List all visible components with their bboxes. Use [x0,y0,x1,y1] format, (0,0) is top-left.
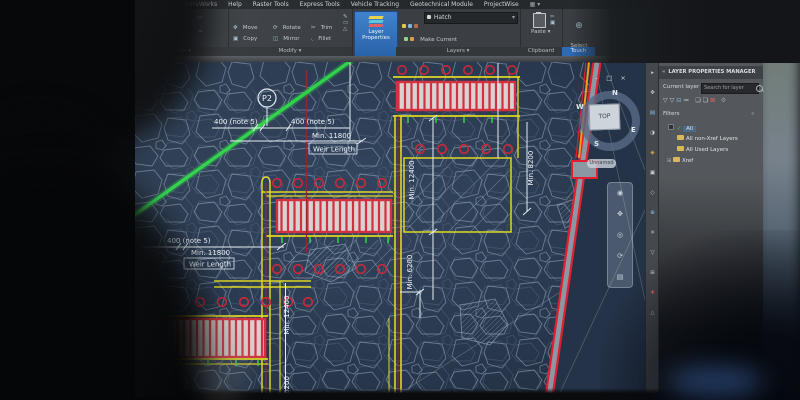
layer-properties-icon [369,16,383,27]
new-layer-icon[interactable]: ❏ [695,97,700,104]
drawing-window-controls: –□× [595,74,634,82]
menu-item-projectwise[interactable]: ProjectWise [484,1,519,8]
clipboard-extra-icons[interactable]: ✂▣ [550,14,555,26]
expand-icon[interactable]: ⊞ [667,158,671,164]
folder-icon [673,157,680,162]
tree-item-xref[interactable]: ⊞ Xref [667,157,693,164]
menu-item-geotechnical-module[interactable]: Geotechnical Module [410,1,473,8]
filter-group-icon[interactable]: ▽ [670,97,675,104]
layer-search-input[interactable]: Search for layer [701,83,759,94]
search-icon [756,85,763,92]
photo-of-cad-workstation: { "menu_bar": { "items": ["InfraWorks", … [0,0,800,400]
clipboard-panel-label[interactable]: Clipboard [520,47,562,56]
filters-label[interactable]: Filters [663,111,680,117]
layer-dropdown[interactable]: Hatch ▾ [424,12,518,24]
modify-panel-label[interactable]: Modify ▾ [228,47,352,56]
tree-item-used[interactable]: All Used Layers [677,146,728,153]
nav-motion-icon[interactable]: ▤ [617,273,624,281]
delete-layer-icon[interactable]: ⊠ [710,97,715,104]
checkbox-icon[interactable] [668,124,674,130]
lpm-title-bar[interactable]: «LAYER PROPERTIES MANAGER [659,66,763,79]
dock-snap-icon[interactable]: ⊕ [650,210,655,216]
refresh-icon[interactable]: ⟐ [721,97,726,104]
menu-overflow-icon[interactable]: ▦ ▾ [530,1,541,8]
filter-new-icon[interactable]: ▽ [663,97,668,104]
close-icon[interactable]: × [620,74,633,82]
modify-extra-icons[interactable]: ✎▭△ [343,14,348,32]
dock-tri-icon[interactable]: △ [650,310,654,316]
layer-properties-button[interactable]: Layer Properties [354,11,398,57]
lpm-toolbar: ▽▽⊟≔|❏❏⊠|⟐ [663,97,759,105]
layers-panel-label[interactable]: Layers ▾ [396,47,520,56]
restore-icon[interactable]: □ [606,74,620,82]
dock-shade-icon[interactable]: ◑ [650,130,655,136]
menu-item-vehicle-tracking[interactable]: Vehicle Tracking [351,1,399,8]
dock-star-icon[interactable]: ✳ [650,230,655,236]
dock-diamond-icon[interactable]: ◇ [650,190,654,196]
minimize-icon[interactable]: – [595,74,606,82]
viewcube-west[interactable]: W [576,103,584,111]
photo-top-right-shadow [570,0,800,63]
dock-plus-icon[interactable]: ✚ [650,290,655,296]
nav-zoom-icon[interactable]: ◎ [617,231,623,239]
dock-array-icon[interactable]: ⊞ [650,270,655,276]
tree-item-all[interactable]: ✓ All [667,124,696,132]
viewcube-east[interactable]: E [631,126,636,134]
dropdown-caret-icon: ▾ [512,13,515,23]
menu-item-express-tools[interactable]: Express Tools [300,1,340,8]
dock-grid-icon[interactable]: ▣ [650,170,655,176]
check-icon: ✓ [677,126,682,132]
nav-pan-icon[interactable]: ✥ [617,210,623,218]
dock-filter-icon[interactable]: ▽ [650,250,654,256]
layer-properties-manager: «LAYER PROPERTIES MANAGER Current layer … [658,62,763,397]
shoulder-rim-light [195,320,250,400]
viewcube-north[interactable]: N [612,89,618,97]
panel-fade [659,177,763,397]
new-layer-vp-icon[interactable]: ❏ [703,97,708,104]
bokeh-glow [668,366,763,396]
menu-item-help[interactable]: Help [228,1,242,8]
paste-button[interactable]: Paste ▾ [531,29,550,35]
layer-states-icon[interactable]: ⊟ [676,97,681,104]
dock-cursor-icon[interactable]: ▸ [651,70,654,76]
folder-icon [677,135,684,140]
navigation-bar[interactable]: ◉ ✥ ◎ ⟳ ▤ [607,182,633,288]
settings-icon[interactable]: ≔ [683,97,689,104]
layer-color-swatch [427,15,431,19]
viewcube-south[interactable]: S [594,140,599,148]
folder-icon [677,146,684,151]
collapse-icon[interactable]: « [662,69,665,75]
docked-toolbar: ▸ ✥ ▤ ◑ ◈ ▣ ◇ ⊕ ✳ ▽ ⊞ ✚ △ [645,62,659,400]
nav-wheel-icon[interactable]: ◉ [617,189,623,197]
dock-move-icon[interactable]: ✥ [650,90,655,96]
current-layer-label: Current layer [663,84,699,90]
menu-item-raster-tools[interactable]: Raster Tools [253,1,289,8]
nav-orbit-icon[interactable]: ⟳ [617,252,623,260]
viewport-control-button[interactable]: Unnamed [587,159,616,168]
tree-item-non-xref[interactable]: All non-Xref Layers [677,135,738,142]
dock-gem-icon[interactable]: ◈ [650,150,654,156]
viewcube-face[interactable]: TOP [589,103,621,130]
dock-layers-icon[interactable]: ▤ [650,110,655,116]
filters-collapse-icon[interactable]: « [751,111,754,117]
paste-icon [533,13,546,28]
